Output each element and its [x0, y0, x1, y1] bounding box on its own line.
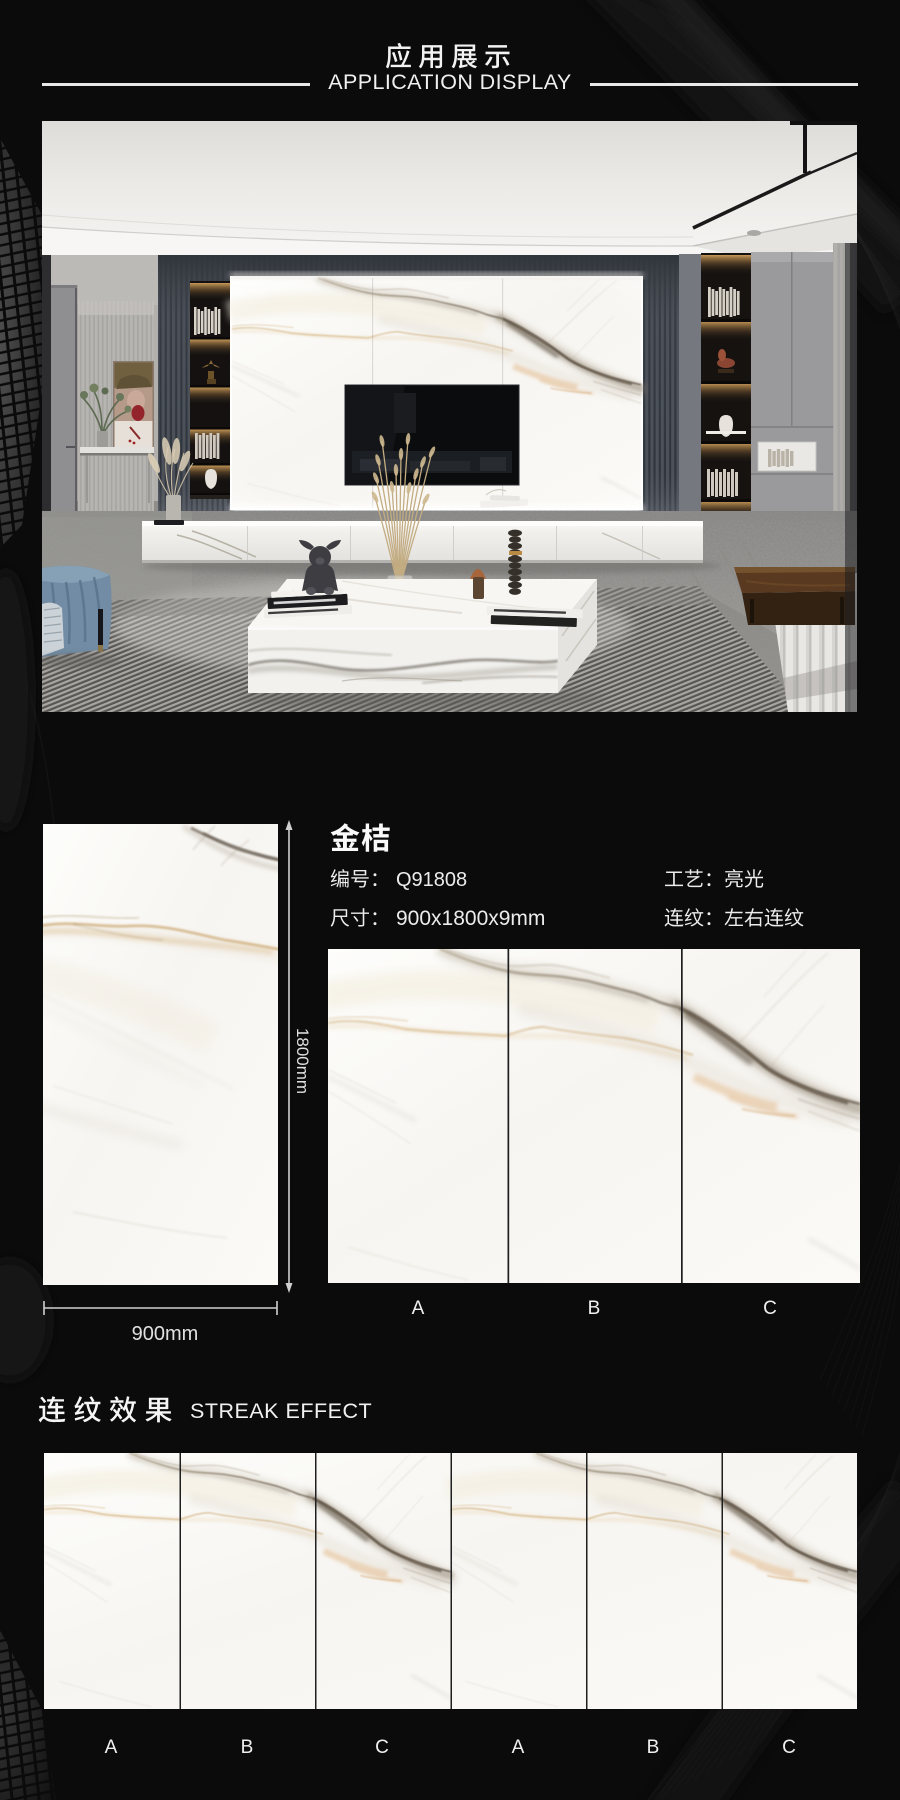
svg-text:1800mm: 1800mm: [293, 1028, 312, 1094]
svg-text:900mm: 900mm: [132, 1323, 199, 1345]
